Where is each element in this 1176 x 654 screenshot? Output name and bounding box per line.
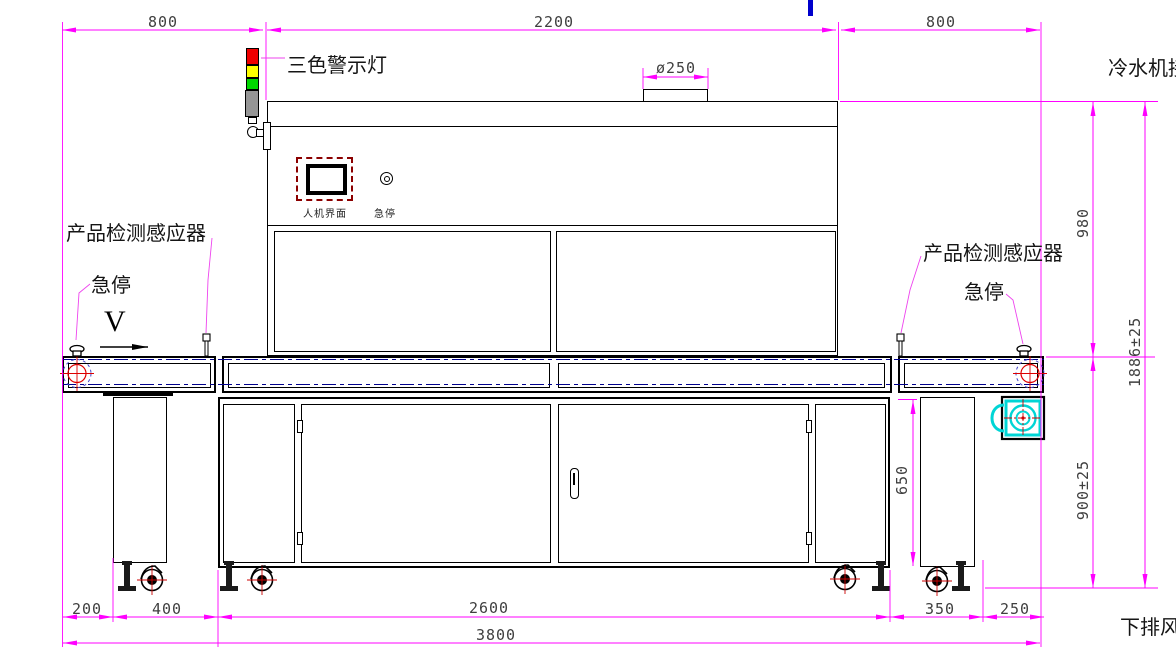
door-hinge — [297, 532, 303, 545]
label-product-sensor-right: 产品检测感应器 — [923, 237, 1063, 266]
door-hinge — [806, 532, 812, 545]
label-chiller: 冷水机接 — [1108, 52, 1176, 81]
dim-bottom-overhang: 200 — [72, 600, 102, 618]
label-estop-panel: 急停 — [374, 205, 396, 220]
product-sensor-right-device — [897, 334, 904, 356]
blue-artifact — [808, 0, 813, 16]
caster-wheel — [922, 566, 952, 596]
warning-light-green — [246, 78, 259, 90]
dim-duct-diameter: ø250 — [656, 59, 696, 77]
label-product-sensor-left: 产品检测感应器 — [66, 217, 206, 246]
dim-table-height: 900±25 — [1074, 460, 1092, 520]
outfeed-leg — [920, 397, 975, 567]
warning-light-red — [246, 48, 259, 65]
dim-bottom-leg: 400 — [152, 600, 182, 618]
label-estop-right: 急停 — [964, 276, 1004, 305]
door-handle-slot — [573, 473, 575, 485]
warning-light-neck — [248, 117, 257, 124]
dim-top-center: 2200 — [534, 13, 574, 31]
cabinet-right-panel — [815, 404, 886, 563]
oven-window-left — [274, 231, 551, 352]
hmi-screen — [306, 164, 347, 195]
infeed-leg-flange — [103, 393, 173, 396]
dim-oven-height: 980 — [1074, 208, 1092, 238]
cabinet-door-left — [301, 404, 551, 563]
product-sensor-left-device — [203, 334, 210, 356]
estop-button-right — [1017, 346, 1031, 357]
cabinet-left-panel — [223, 404, 295, 563]
conveyor-right-inner — [904, 363, 1038, 388]
dim-bottom-cabinet: 2600 — [469, 599, 509, 617]
cad-drawing-canvas: 800 2200 800 ø250 980 1886±25 900±25 650… — [0, 0, 1176, 654]
oven-panel-line — [267, 225, 838, 226]
oven-top-band-line — [267, 126, 838, 127]
caster-wheel — [830, 564, 860, 594]
label-hmi: 人机界面 — [303, 205, 347, 220]
dim-top-right: 800 — [926, 13, 956, 31]
label-direction-v: V — [104, 305, 126, 339]
fan-unit — [992, 397, 1044, 439]
door-hinge — [806, 420, 812, 433]
conveyor-left-inner — [68, 363, 211, 388]
warning-light-base — [245, 90, 259, 117]
warning-light-bracket-v — [263, 122, 271, 150]
label-bottom-exhaust: 下排风 — [1120, 611, 1176, 640]
estop-button-left — [70, 346, 84, 357]
dim-leg-height: 650 — [893, 465, 911, 495]
cabinet-door-right — [558, 404, 809, 563]
exhaust-duct — [643, 89, 708, 102]
dim-bottom-right-overhang: 250 — [1000, 600, 1030, 618]
caster-wheel — [137, 565, 167, 595]
oven-window-right — [556, 231, 836, 352]
dim-top-left: 800 — [148, 13, 178, 31]
conveyor-center-inner-left — [228, 363, 550, 388]
label-warning-light: 三色警示灯 — [287, 49, 387, 78]
infeed-leg — [113, 397, 167, 563]
warning-light-yellow — [246, 65, 259, 78]
dim-bottom-right-leg: 350 — [925, 600, 955, 618]
dim-total-height: 1886±25 — [1126, 317, 1144, 387]
dim-bottom-total: 3800 — [476, 626, 516, 644]
door-hinge — [297, 420, 303, 433]
estop-button-panel-inner — [384, 176, 390, 182]
label-estop-left: 急停 — [91, 269, 131, 298]
caster-wheel — [247, 565, 277, 595]
conveyor-center-inner-right — [558, 363, 885, 388]
